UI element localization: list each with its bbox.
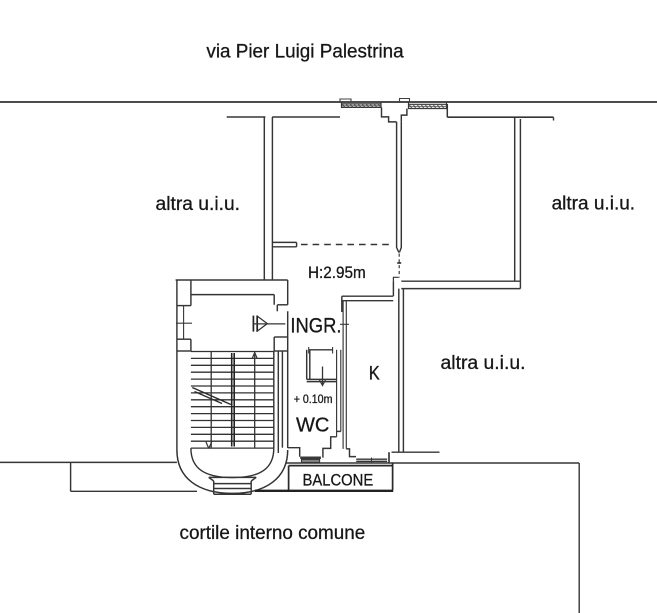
svg-text:+ 0.10m: + 0.10m (294, 394, 333, 406)
svg-text:K: K (369, 364, 380, 385)
svg-text:via Pier Luigi Palestrina: via Pier Luigi Palestrina (206, 40, 403, 62)
svg-text:WC: WC (296, 415, 329, 437)
svg-text:altra u.i.u.: altra u.i.u. (441, 352, 526, 374)
svg-text:cortile interno comune: cortile interno comune (180, 522, 366, 544)
svg-text:altra u.i.u.: altra u.i.u. (156, 193, 241, 215)
svg-text:BALCONE: BALCONE (303, 471, 374, 490)
svg-text:INGR.: INGR. (290, 314, 341, 337)
svg-text:H:2.95m: H:2.95m (308, 263, 366, 282)
svg-text:altra u.i.u.: altra u.i.u. (552, 192, 636, 214)
